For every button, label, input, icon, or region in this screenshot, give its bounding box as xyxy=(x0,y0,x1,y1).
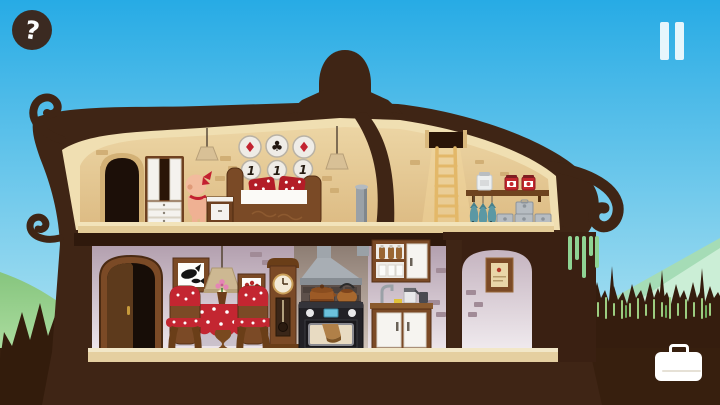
cabinet-handle xyxy=(410,258,413,266)
dining-chair-right[interactable] xyxy=(234,286,272,354)
chair-cushion xyxy=(238,286,268,306)
hood-rim xyxy=(300,278,362,285)
red-jar[interactable] xyxy=(522,175,535,190)
hatch-post xyxy=(463,130,467,148)
stove-display xyxy=(324,309,338,317)
pause-icon xyxy=(675,22,684,60)
nightstand-handle xyxy=(218,210,222,212)
wardrobe[interactable] xyxy=(145,156,184,226)
framed-note[interactable] xyxy=(486,258,513,292)
suitcase-icon xyxy=(655,352,702,381)
scene-canvas: ♦ ♣ ♦ 1 1 1 xyxy=(0,0,720,405)
nightstand-top xyxy=(207,197,233,202)
stove-knob xyxy=(306,309,314,317)
suit-glyph-club: ♣ xyxy=(271,139,284,155)
stove[interactable] xyxy=(299,302,363,356)
shelf-bracket xyxy=(538,196,541,202)
wardrobe-interior xyxy=(159,159,170,200)
stove-cooktop-edge xyxy=(299,302,363,308)
help-button[interactable]: ? xyxy=(12,10,52,50)
baby-ear xyxy=(187,184,192,189)
pendulum-bob xyxy=(279,323,288,332)
scarecrow-roof-topper xyxy=(319,50,371,112)
wardrobe-door-left xyxy=(148,159,159,200)
inventory-button[interactable] xyxy=(652,342,706,384)
coffee-maker[interactable] xyxy=(404,288,416,303)
number-plates[interactable]: 1 1 1 xyxy=(242,160,313,180)
pause-button[interactable] xyxy=(660,22,690,60)
lower-floor xyxy=(88,352,558,362)
pause-icon xyxy=(660,22,669,60)
number-1: 1 xyxy=(299,163,307,177)
question-mark-icon: ? xyxy=(23,17,41,44)
white-jar[interactable] xyxy=(477,172,492,190)
suitcase-seam xyxy=(662,370,701,372)
wardrobe-door-right xyxy=(170,159,181,200)
red-jar[interactable] xyxy=(505,175,518,190)
dining-chair-left[interactable] xyxy=(166,286,204,354)
number-1: 1 xyxy=(273,164,281,178)
kitchen-upper-cabinet[interactable] xyxy=(372,240,430,282)
glasses xyxy=(379,265,403,276)
beam-capital xyxy=(443,232,465,240)
number-1: 1 xyxy=(247,164,255,178)
nightstand[interactable] xyxy=(207,197,233,226)
lower-floor xyxy=(88,232,596,362)
counter-top xyxy=(370,303,433,309)
window-opening xyxy=(105,158,139,222)
door-knob xyxy=(127,306,130,315)
stove-knob xyxy=(348,309,356,317)
suit-glyph-diamond: ♦ xyxy=(244,140,257,156)
pipe-stub xyxy=(357,246,369,256)
chair-cushion xyxy=(170,286,200,306)
grandfather-clock[interactable] xyxy=(266,258,300,355)
hatch-post xyxy=(425,130,429,148)
shelf-divider xyxy=(376,259,404,262)
suit-glyph-diamond: ♦ xyxy=(298,140,311,156)
bottles xyxy=(379,245,402,259)
kitchen-base-cabinet[interactable] xyxy=(372,309,431,354)
hood-pipe xyxy=(317,246,331,260)
attic-shelf xyxy=(466,190,549,196)
suit-plates[interactable]: ♦ ♣ ♦ xyxy=(239,135,315,158)
game-scene: ♦ ♣ ♦ 1 1 1 xyxy=(0,0,720,405)
bedroom-floor xyxy=(78,226,554,233)
alcove xyxy=(462,250,532,348)
sponge[interactable] xyxy=(394,299,402,303)
front-door[interactable] xyxy=(100,256,162,356)
support-beam xyxy=(446,240,462,362)
roof-hatch-opening[interactable] xyxy=(428,132,464,148)
bedroom-window[interactable] xyxy=(100,153,144,222)
